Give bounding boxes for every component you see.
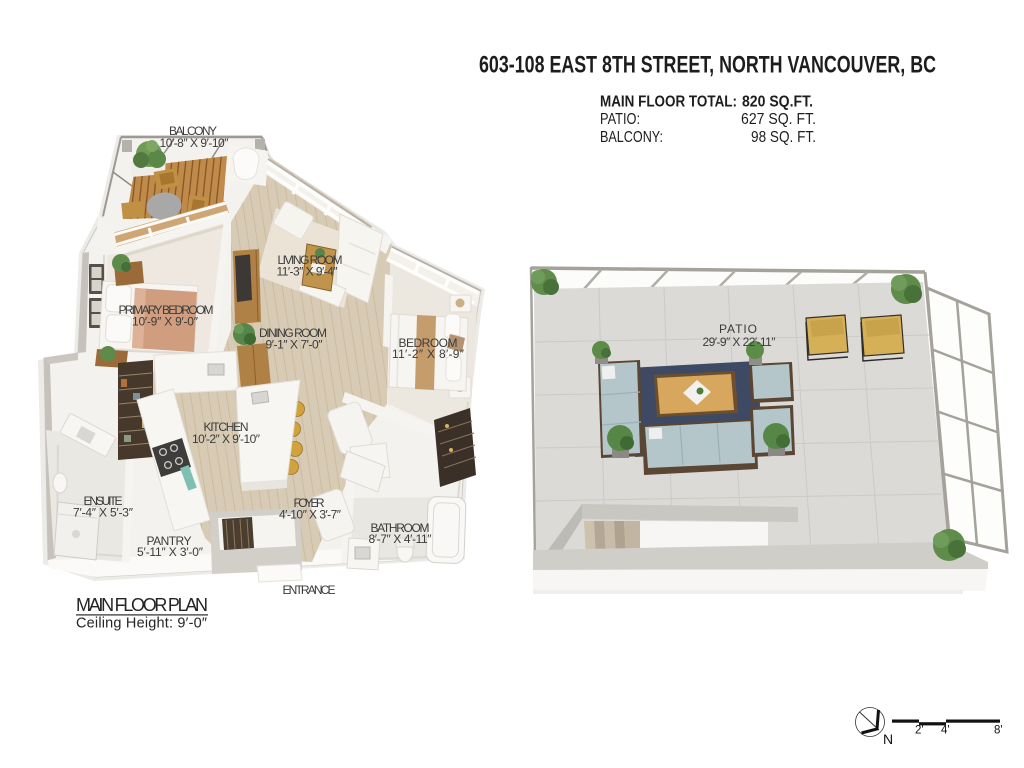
svg-text:29′-9″ X 22′-11″: 29′-9″ X 22′-11″ [703,335,777,349]
svg-text:BALCONY:: BALCONY: [600,129,663,146]
svg-text:11′-2″ X 8′-9″: 11′-2″ X 8′-9″ [392,347,465,361]
svg-text:10′-8″ X 9′-10″: 10′-8″ X 9′-10″ [160,136,230,150]
svg-text:MAIN FLOOR PLAN: MAIN FLOOR PLAN [76,595,208,615]
svg-text:10′-2″ X 9′-10″: 10′-2″ X 9′-10″ [192,432,261,446]
svg-text:11′-3″ X 9′-4″: 11′-3″ X 9′-4″ [277,265,339,279]
svg-text:603-108 EAST 8TH STREET, NORTH: 603-108 EAST 8TH STREET, NORTH VANCOUVER… [479,52,936,79]
svg-text:N: N [883,731,893,747]
svg-text:4': 4' [941,725,950,737]
svg-text:627 SQ. FT.: 627 SQ. FT. [741,111,816,128]
svg-text:7′-4″ X 5′-3″: 7′-4″ X 5′-3″ [73,506,134,520]
svg-text:9′-1″ X 7′-0″: 9′-1″ X 7′-0″ [266,338,324,352]
svg-text:98 SQ. FT.: 98 SQ. FT. [751,129,816,146]
svg-text:8': 8' [994,725,1003,737]
svg-text:5′-11″ X 3′-0″: 5′-11″ X 3′-0″ [137,545,204,559]
svg-text:820 SQ.FT.: 820 SQ.FT. [742,94,813,111]
svg-text:8′-7″ X 4′-11″: 8′-7″ X 4′-11″ [369,532,433,546]
svg-text:10′-9″ X 9′-0″: 10′-9″ X 9′-0″ [132,315,199,329]
svg-text:PATIO: PATIO [719,322,757,336]
svg-text:Ceiling Height: 9′-0″: Ceiling Height: 9′-0″ [76,616,207,632]
svg-text:PATIO:: PATIO: [600,111,640,128]
svg-text:2': 2' [915,725,924,737]
svg-text:MAIN FLOOR TOTAL:: MAIN FLOOR TOTAL: [600,94,737,111]
svg-text:4′-10″ X 3′-7″: 4′-10″ X 3′-7″ [279,508,342,522]
svg-text:ENTRANCE: ENTRANCE [283,583,336,597]
